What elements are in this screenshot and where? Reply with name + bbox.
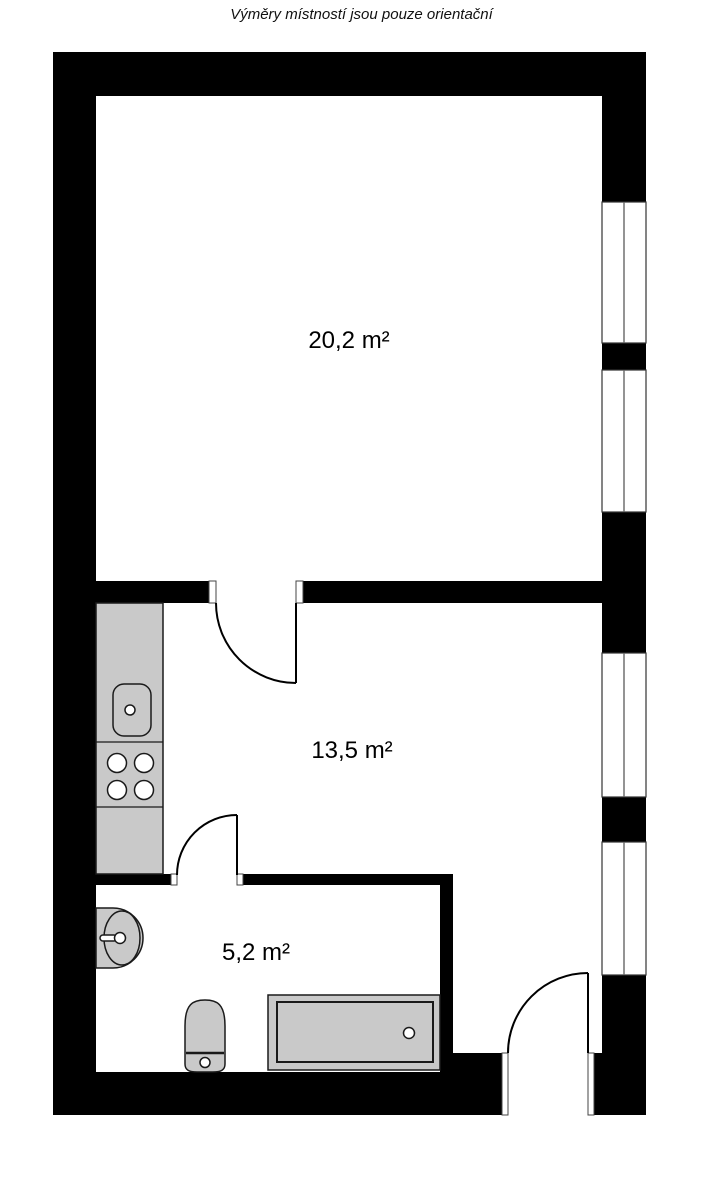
toilet-button	[200, 1058, 210, 1068]
burner	[108, 754, 127, 773]
partition-bathroom-right	[243, 874, 453, 885]
partition-living-left	[96, 581, 209, 603]
fixtures	[96, 603, 440, 1072]
floor-plan: 20,2 m² 13,5 m² 5,2 m²	[0, 0, 723, 1200]
toilet	[185, 1000, 225, 1072]
area-label-main: 13,5 m²	[311, 737, 392, 764]
door-jamb	[171, 874, 177, 885]
door-swing-arc	[177, 815, 237, 875]
walls	[53, 52, 646, 1115]
window-4	[602, 842, 646, 975]
wall-top	[53, 52, 646, 96]
door-swing-arc	[216, 603, 296, 683]
washbasin	[96, 908, 143, 968]
door-jamb	[237, 874, 243, 885]
entrance-opening	[508, 1053, 588, 1115]
window-3	[602, 653, 646, 797]
wall-left	[53, 52, 96, 1115]
burner	[135, 754, 154, 773]
bathtub	[268, 995, 440, 1070]
door-jamb	[502, 1053, 508, 1115]
door-living	[216, 603, 296, 683]
door-bathroom	[177, 815, 237, 875]
burner	[135, 781, 154, 800]
door-jamb	[588, 1053, 594, 1115]
door-swing-arc	[508, 973, 588, 1053]
partition-living-right	[303, 581, 602, 603]
bathtub-drain	[404, 1028, 415, 1039]
burner	[108, 781, 127, 800]
door-jamb	[209, 581, 216, 603]
kitchen-counter	[96, 603, 163, 874]
partition-bathroom-left	[96, 874, 171, 885]
faucet-knob	[115, 933, 126, 944]
area-label-bathroom: 5,2 m²	[222, 939, 290, 966]
window-1	[602, 202, 646, 343]
sink-drain	[125, 705, 135, 715]
area-label-living: 20,2 m²	[308, 327, 389, 354]
door-jamb	[296, 581, 303, 603]
window-2	[602, 370, 646, 512]
door-entrance	[508, 973, 588, 1053]
wall-bathroom-right	[440, 874, 453, 1072]
counter-top	[96, 603, 163, 874]
